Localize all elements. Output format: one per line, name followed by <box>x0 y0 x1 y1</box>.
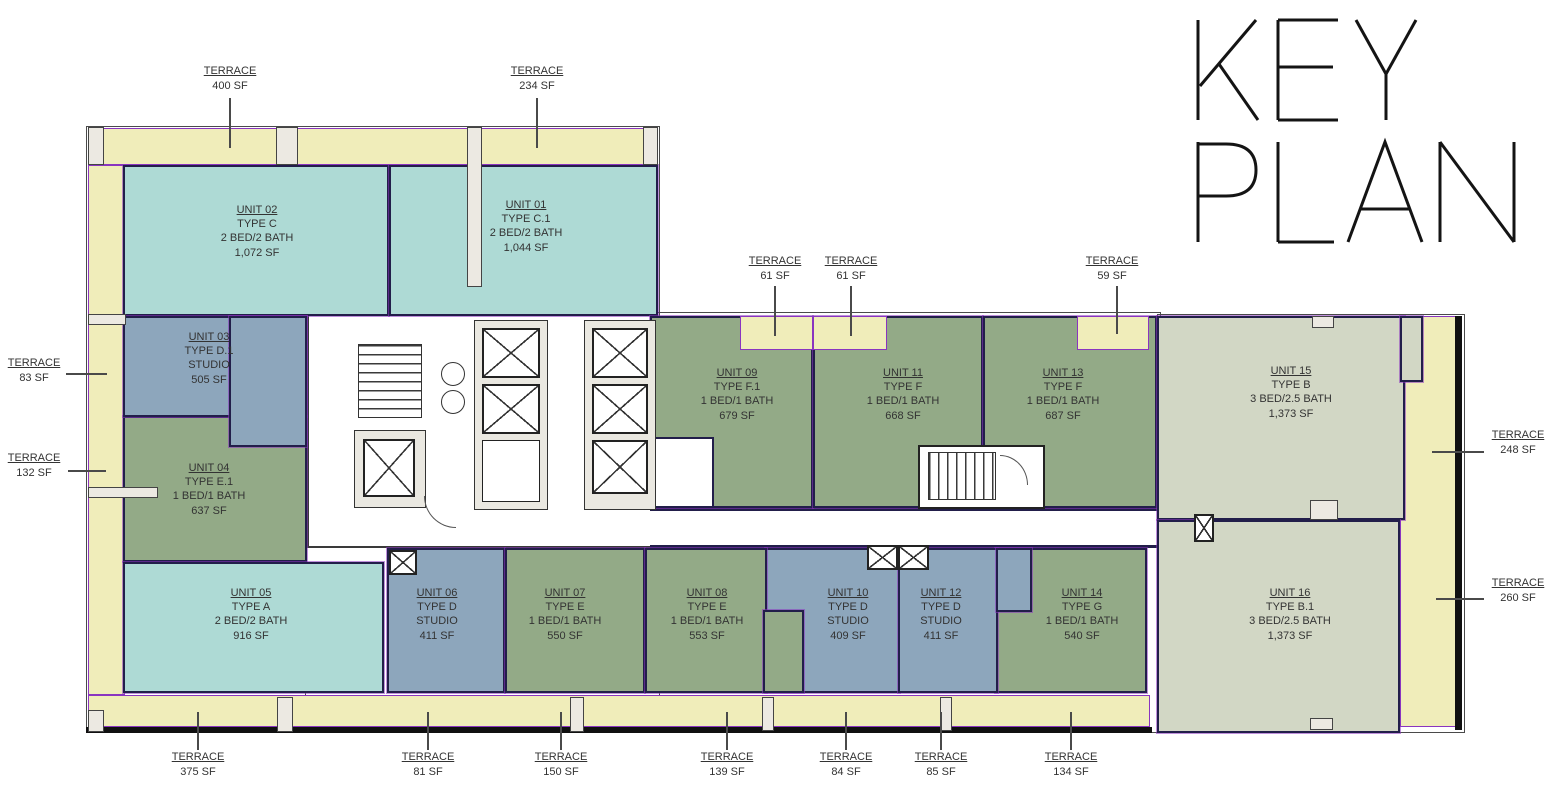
leader-line <box>940 712 942 750</box>
terrace-label-85: TERRACE85 SF <box>896 750 986 780</box>
leader-line <box>850 286 852 336</box>
unit-08-label: UNIT 08TYPE E1 BED/1 BATH553 SF <box>627 586 787 643</box>
elevator-icon <box>592 440 648 494</box>
column-pier <box>1312 316 1334 328</box>
terrace-label-234: TERRACE234 SF <box>492 64 582 94</box>
leader-line <box>560 712 562 750</box>
perimeter-wall-bottom <box>86 727 1152 733</box>
shaft-icon <box>1194 514 1214 542</box>
unit-09-label: UNIT 09TYPE F.11 BED/1 BATH679 SF <box>657 366 817 423</box>
column-pier <box>277 697 293 732</box>
column-pier <box>643 127 658 165</box>
column-pier <box>1310 500 1338 520</box>
unit-12-label: UNIT 12TYPE DSTUDIO411 SF <box>861 586 1021 643</box>
terrace-label-260: TERRACE260 SF <box>1483 576 1553 606</box>
unit-15-16-divider <box>1214 518 1400 521</box>
terrace-label-84: TERRACE84 SF <box>801 750 891 780</box>
leader-line <box>1432 451 1484 453</box>
unit-03-label: UNIT 03TYPE D.1STUDIO505 SF <box>129 330 289 387</box>
terrace-label-132: TERRACE132 SF <box>0 451 68 481</box>
terrace-label-400: TERRACE400 SF <box>185 64 275 94</box>
unit-14-label: UNIT 14TYPE G1 BED/1 BATH540 SF <box>1002 586 1162 643</box>
shaft-icon <box>867 545 898 570</box>
terrace-label-81: TERRACE81 SF <box>383 750 473 780</box>
leader-line <box>68 470 106 472</box>
unit-05-label: UNIT 05TYPE A2 BED/2 BATH916 SF <box>171 586 331 643</box>
column-pier <box>88 710 104 732</box>
leader-line <box>66 373 107 375</box>
terrace-label-61b: TERRACE61 SF <box>806 254 896 284</box>
terrace-notch-59 <box>1077 316 1149 350</box>
elevator-icon <box>482 384 540 434</box>
column-pier <box>276 127 298 165</box>
terrace-zone-left <box>88 165 125 695</box>
column-pier <box>940 697 952 731</box>
key-plan-drawing: UNIT 01TYPE C.12 BED/2 BATH1,044 SF UNIT… <box>0 0 1553 795</box>
stair-east-treads <box>928 452 996 500</box>
terrace-label-139: TERRACE139 SF <box>682 750 772 780</box>
elevator-icon <box>363 439 415 497</box>
leader-line <box>774 286 776 336</box>
unit-15-terrace-overlap <box>1400 316 1423 382</box>
column-pier <box>88 314 126 325</box>
column-pier <box>570 697 584 732</box>
leader-line <box>427 712 429 750</box>
elevator-icon <box>482 328 540 378</box>
elevator-icon <box>592 384 648 434</box>
unit-13-label: UNIT 13TYPE F1 BED/1 BATH687 SF <box>983 366 1143 423</box>
fixture-circle <box>441 390 465 414</box>
terrace-zone-top <box>88 128 658 165</box>
key-plan-lettering <box>1192 16 1527 246</box>
fixture-circle <box>441 362 465 386</box>
terrace-label-59: TERRACE59 SF <box>1067 254 1157 284</box>
perimeter-wall-right <box>1455 316 1462 730</box>
unit-15-label: UNIT 15TYPE B3 BED/2.5 BATH1,373 SF <box>1211 364 1371 421</box>
elevator-icon <box>592 328 648 378</box>
elevator-lobby <box>650 437 714 508</box>
leader-line <box>1116 286 1118 334</box>
leader-line <box>197 712 199 750</box>
leader-line <box>229 98 231 148</box>
terrace-label-83: TERRACE83 SF <box>0 356 68 386</box>
key-plan-title: KEY PLAN <box>1192 16 1527 246</box>
terrace-notch-61a <box>740 316 813 350</box>
column-pier <box>762 697 774 731</box>
leader-line <box>726 712 728 750</box>
leader-line <box>536 98 538 148</box>
unit-02-label: UNIT 02TYPE C2 BED/2 BATH1,072 SF <box>177 203 337 260</box>
column-pier <box>88 127 104 165</box>
column-pier <box>1310 718 1333 730</box>
stair-core <box>358 344 422 418</box>
terrace-label-150: TERRACE150 SF <box>516 750 606 780</box>
shaft-icon <box>389 550 417 575</box>
unit-16-label: UNIT 16TYPE B.13 BED/2.5 BATH1,373 SF <box>1210 586 1370 643</box>
leader-line <box>1436 598 1484 600</box>
unit-01-label: UNIT 01TYPE C.12 BED/2 BATH1,044 SF <box>446 198 606 255</box>
unit-04-label: UNIT 04TYPE E.11 BED/1 BATH637 SF <box>129 461 289 518</box>
terrace-label-248: TERRACE248 SF <box>1483 428 1553 458</box>
unit-11-label: UNIT 11TYPE F1 BED/1 BATH668 SF <box>823 366 983 423</box>
elevator-shaft-open <box>482 440 540 502</box>
leader-line <box>845 712 847 750</box>
terrace-label-375: TERRACE375 SF <box>153 750 243 780</box>
unit-07-label: UNIT 07TYPE E1 BED/1 BATH550 SF <box>485 586 645 643</box>
corridor <box>650 508 1194 548</box>
terrace-label-134: TERRACE134 SF <box>1026 750 1116 780</box>
shaft-icon <box>898 545 929 570</box>
leader-line <box>1070 712 1072 750</box>
terrace-zone-bottom <box>88 695 1150 727</box>
